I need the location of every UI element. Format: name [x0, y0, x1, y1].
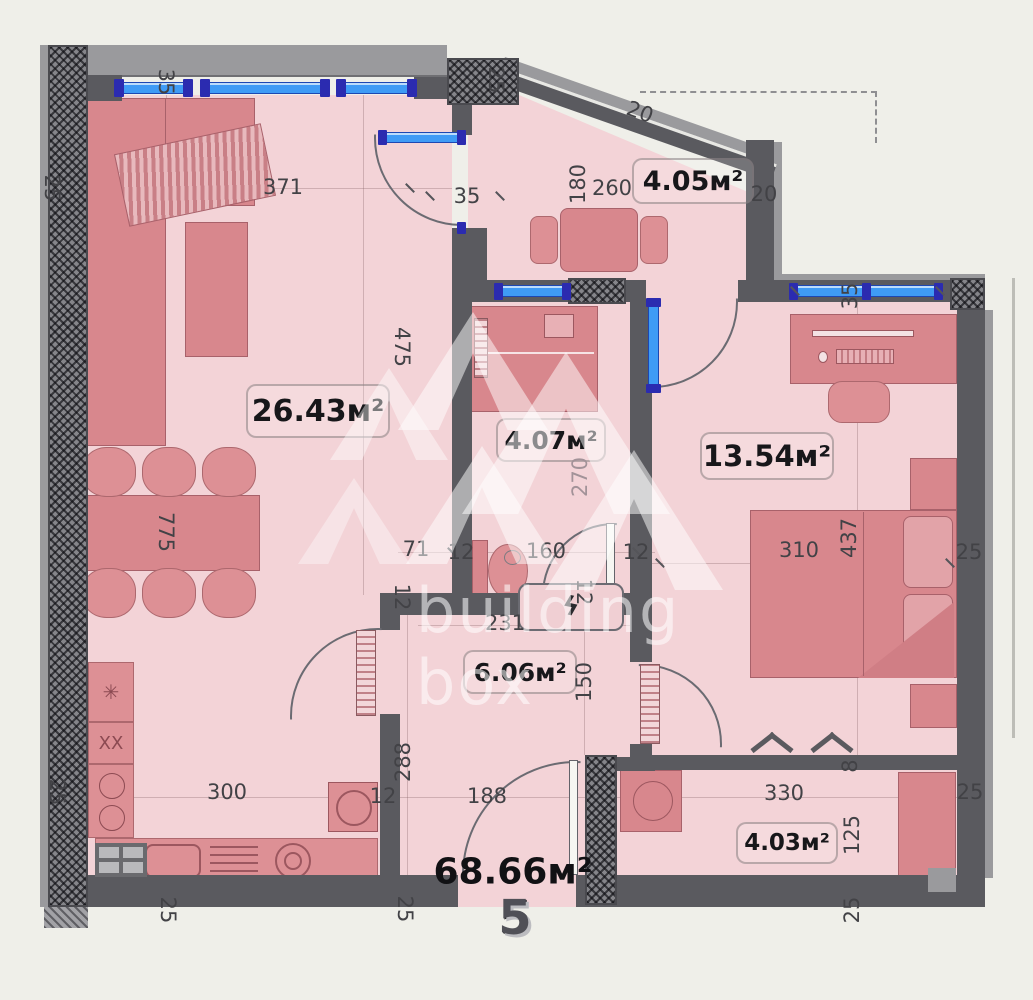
dimension-label: 775 — [154, 512, 178, 552]
dining-chair — [202, 568, 256, 618]
dimension-label: 300 — [207, 780, 247, 804]
wall-right-outer-edge — [985, 310, 993, 878]
dimension-label: 25 — [393, 896, 417, 923]
watermark-text-line2: box — [416, 646, 534, 719]
kitchen-sink — [145, 844, 201, 878]
door-hinge — [457, 222, 466, 234]
wall-living-balcony-block — [452, 228, 487, 288]
window-mullion — [562, 283, 571, 300]
door-hinge — [646, 298, 661, 307]
balcony-corner-block — [928, 868, 956, 892]
keyboard — [836, 349, 894, 364]
monitor — [812, 330, 914, 337]
balcony-bottom-area: 4.03м² — [744, 830, 830, 856]
mouse — [818, 351, 828, 363]
door-hinge — [646, 384, 661, 393]
nightstand — [910, 458, 957, 510]
wall-entry-column-link — [617, 757, 655, 771]
door-hinge — [457, 130, 466, 145]
wall-top-face — [88, 45, 447, 77]
dimension-label: 12 — [370, 784, 397, 808]
window-mullion — [114, 79, 124, 97]
bedroom-area: 13.54м² — [703, 439, 831, 473]
dimension-label: 371 — [263, 175, 303, 199]
wall-bottom-right — [576, 875, 985, 907]
bedroom-label-box: 13.54м² — [700, 432, 834, 480]
dining-chair — [142, 447, 196, 497]
dimension-label: 188 — [467, 784, 507, 808]
bedroom-balcony-door-leaf — [648, 302, 659, 388]
apartment-number: 5 — [498, 890, 531, 946]
dimension-label: 330 — [764, 781, 804, 805]
nightstand — [910, 684, 957, 728]
dining-chair — [202, 447, 256, 497]
balcony-chair — [640, 216, 668, 264]
dimension-label: 25 — [45, 779, 69, 806]
dimension-label: 270 — [568, 457, 592, 497]
dining-chair — [82, 447, 136, 497]
window-living-3 — [340, 82, 412, 94]
shaft-cell — [99, 862, 119, 873]
desk-chair — [828, 381, 890, 423]
wall-hatch-block-band — [568, 278, 626, 304]
bedroom-door-leaf — [640, 664, 660, 744]
shaft-cell — [99, 847, 119, 858]
dimension-label: 288 — [391, 742, 415, 782]
dimension-label: 35 — [154, 69, 178, 96]
window-mullion — [183, 79, 193, 97]
tv-cabinet — [185, 222, 248, 357]
dimension-label: 150 — [572, 662, 596, 702]
dimension-label: 25 — [156, 897, 180, 924]
total-area-label: 68.66м² — [433, 852, 592, 893]
balcony-bottom-label-box: 4.03м² — [736, 822, 838, 864]
balcony-top-label-box: 4.05м² — [632, 158, 754, 204]
kitchen-fridge: ✳ — [88, 662, 134, 722]
window-bathroom — [500, 285, 566, 297]
french-window-chevron — [810, 728, 854, 756]
burner-circle — [99, 805, 125, 831]
window-mullion — [200, 79, 210, 97]
dimension-label: 260 — [592, 176, 632, 200]
roof-outline-dashed — [640, 91, 877, 93]
balcony-top-area: 4.05м² — [643, 166, 744, 197]
dimension-label: 180 — [566, 164, 590, 204]
dimension-label: 35 — [838, 283, 862, 310]
living-hall-door-leaf — [356, 630, 376, 716]
balcony-table — [560, 208, 638, 272]
shaft-grid — [95, 843, 147, 877]
kitchen-stove-top: XX — [88, 722, 134, 764]
dimension-label: 25 — [840, 897, 864, 924]
scan-edge-artifact — [1012, 278, 1015, 738]
window-living-2 — [205, 82, 323, 94]
dimension-label: 125 — [840, 815, 864, 855]
door-hinge — [378, 130, 387, 145]
watermark-text-line1: building — [416, 574, 680, 647]
window-mullion — [336, 79, 346, 97]
wall-bedroom-balcony — [652, 755, 957, 770]
roof-outline-dashed — [875, 91, 877, 143]
dimension-label: 12 — [390, 584, 414, 611]
dining-chair — [142, 568, 196, 618]
balcony-chair — [530, 216, 558, 264]
dimension-label: 25 — [956, 540, 983, 564]
washer-door — [336, 790, 372, 826]
french-window-chevron — [750, 728, 794, 756]
shaft-cell — [123, 847, 143, 858]
balcony-cabinet — [620, 770, 682, 832]
window-mullion — [494, 283, 503, 300]
cabinet-circle — [633, 781, 673, 821]
window-mullion — [862, 283, 871, 300]
burner-circle — [99, 773, 125, 799]
dimension-label: 25 — [484, 67, 508, 94]
dimension-label: 8 — [838, 759, 862, 772]
dimension-label: 437 — [837, 518, 861, 558]
dimension-label: 20 — [751, 182, 778, 206]
hob-inner — [284, 852, 302, 870]
ref-line — [407, 595, 408, 875]
kitchen-hob-spiral — [275, 843, 311, 879]
dining-chair — [82, 568, 136, 618]
dimension-label: 35 — [454, 184, 481, 208]
kitchen-burners — [88, 764, 134, 838]
floor-plan: ✳ XX ϟ — [0, 0, 1033, 1000]
dimension-label: 25 — [40, 175, 64, 202]
wall-hatch-block-top — [447, 58, 519, 105]
dimension-label: 310 — [779, 538, 819, 562]
bed-pillow — [903, 516, 953, 588]
window-mullion — [320, 79, 330, 97]
dimension-label: 12 — [623, 540, 650, 564]
kitchen-dish-rack — [210, 846, 258, 872]
wall-hatch-block-right — [950, 278, 985, 310]
bed-center-line — [863, 512, 864, 676]
shaft-cell — [123, 862, 143, 873]
vanity-sink-box — [544, 314, 574, 338]
dimension-label: 25 — [957, 780, 984, 804]
window-mullion — [407, 79, 417, 97]
dimension-label: 475 — [390, 327, 414, 367]
balcony-door-leaf — [382, 132, 462, 143]
